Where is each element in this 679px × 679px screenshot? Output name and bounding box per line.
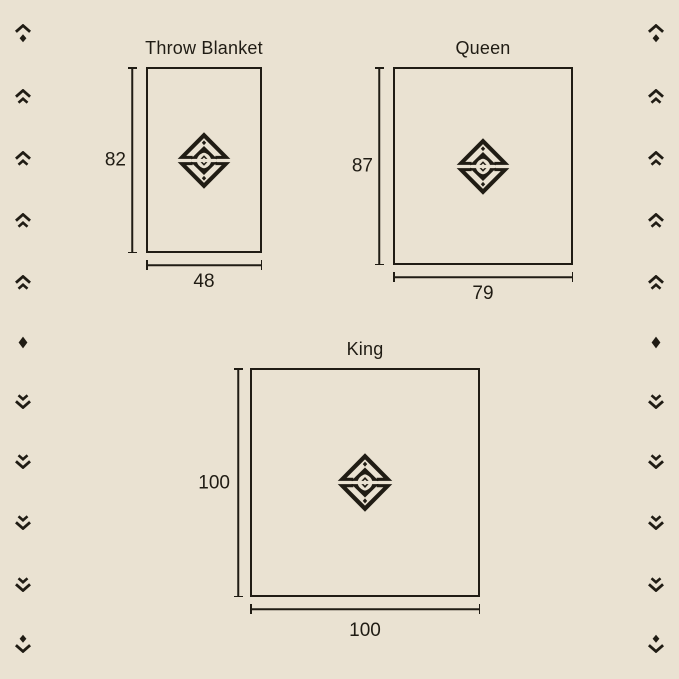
- brand-emblem-icon: [177, 132, 231, 189]
- double-chevron-up-icon: [15, 213, 32, 228]
- width-value: 48: [193, 272, 214, 291]
- double-chevron-down-icon: [648, 454, 665, 469]
- height-dimension-line: [234, 368, 243, 597]
- chevron-up-diamond-icon: [15, 24, 32, 44]
- double-chevron-up-icon: [15, 151, 32, 166]
- size-label: Throw Blanket: [145, 39, 263, 57]
- size-diagram-queen: Queen 87 79: [393, 67, 573, 265]
- width-dimension-line: [146, 260, 262, 270]
- double-chevron-up-icon: [648, 213, 665, 228]
- double-chevron-up-icon: [648, 89, 665, 104]
- width-dimension-line: [393, 272, 573, 282]
- size-diagram-throw-blanket: Throw Blanket 82 48: [146, 67, 262, 253]
- size-label: King: [347, 340, 384, 358]
- height-value: 87: [352, 157, 373, 176]
- diamond-chevron-down-icon: [15, 633, 32, 653]
- height-value: 100: [198, 473, 230, 492]
- size-chart: Throw Blanket 82 48 Queen 87 79 King: [0, 0, 679, 679]
- double-chevron-down-icon: [648, 515, 665, 530]
- double-chevron-down-icon: [15, 394, 32, 409]
- double-chevron-up-icon: [648, 151, 665, 166]
- blanket-outline: [146, 67, 262, 253]
- blanket-outline: [250, 368, 480, 597]
- height-dimension-line: [375, 67, 384, 265]
- double-chevron-down-icon: [648, 394, 665, 409]
- decorative-rail-left: [0, 0, 46, 679]
- chevron-up-diamond-icon: [648, 24, 665, 44]
- diamond-icon: [651, 336, 661, 349]
- width-value: 79: [472, 284, 493, 303]
- blanket-outline: [393, 67, 573, 265]
- double-chevron-down-icon: [15, 515, 32, 530]
- double-chevron-down-icon: [648, 577, 665, 592]
- diamond-icon: [18, 336, 28, 349]
- size-diagram-king: King 100 100: [250, 368, 480, 597]
- brand-emblem-icon: [456, 138, 510, 195]
- double-chevron-down-icon: [15, 454, 32, 469]
- decorative-rail-right: [633, 0, 679, 679]
- double-chevron-up-icon: [15, 89, 32, 104]
- brand-emblem-icon: [337, 453, 393, 512]
- width-value: 100: [349, 621, 381, 640]
- width-dimension-line: [250, 604, 480, 614]
- double-chevron-up-icon: [648, 275, 665, 290]
- height-value: 82: [105, 151, 126, 170]
- diamond-chevron-down-icon: [648, 633, 665, 653]
- size-label: Queen: [455, 39, 510, 57]
- double-chevron-down-icon: [15, 577, 32, 592]
- height-dimension-line: [128, 67, 137, 253]
- double-chevron-up-icon: [15, 275, 32, 290]
